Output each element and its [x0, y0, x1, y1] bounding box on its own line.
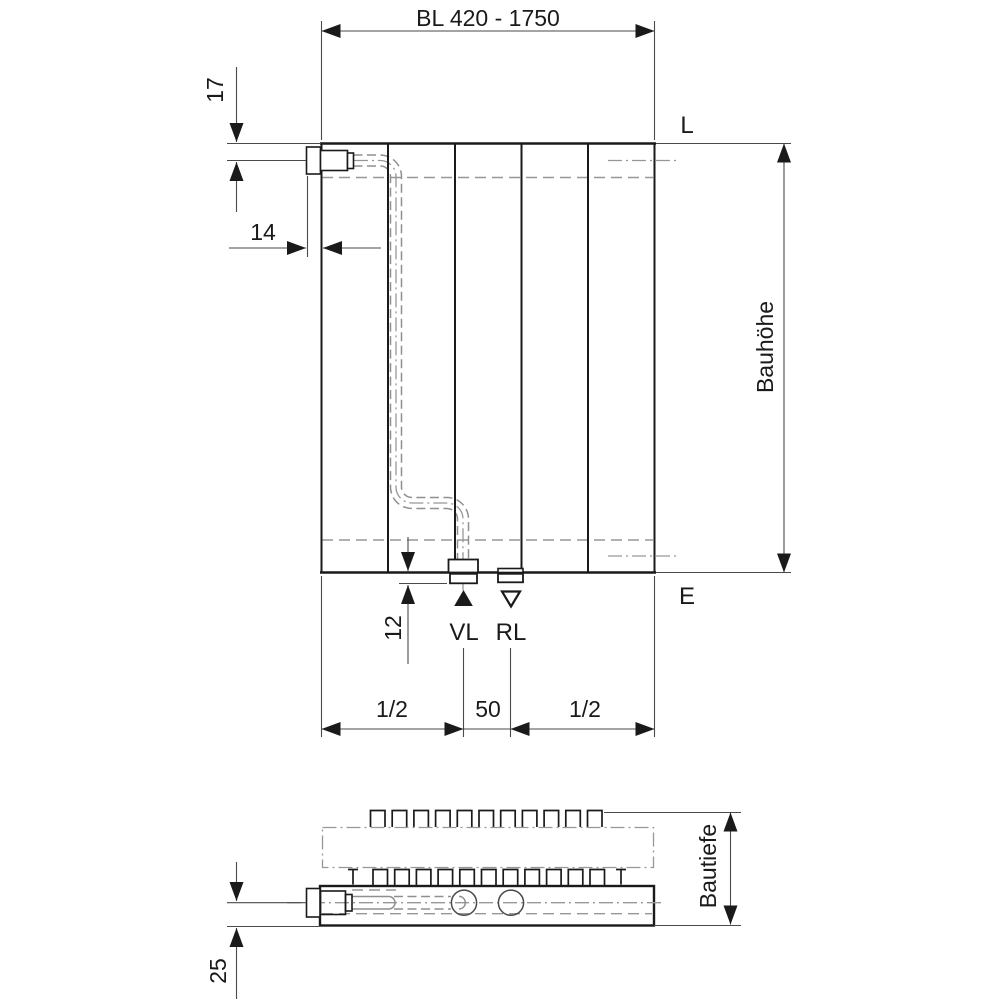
side-offset-text: 14: [250, 219, 276, 245]
supply-label: VL: [449, 619, 478, 646]
bottom-stub-text: 12: [380, 615, 406, 641]
plan-fitting-end-cap: [307, 889, 321, 918]
radiator-technical-drawing: VL RL L E BL 420 - 1750 17 14 12: [0, 0, 1000, 1000]
return-lip: [498, 569, 523, 573]
return-stub: [498, 574, 523, 583]
supply-port: [449, 560, 479, 584]
background: [0, 0, 1000, 1000]
bottom-right-span-text: 1/2: [569, 696, 601, 722]
top-offset-text: 17: [202, 77, 228, 103]
supply-nut: [449, 560, 479, 573]
bottom-right-label: E: [679, 583, 695, 610]
return-port: [498, 569, 523, 583]
fitting-neck: [348, 153, 354, 169]
bottom-center-span-text: 50: [475, 696, 501, 722]
top-right-label: L: [680, 112, 693, 139]
supply-stub: [450, 574, 477, 584]
return-label: RL: [496, 619, 527, 646]
front-panel-body: [320, 886, 654, 926]
fitting-body: [321, 151, 348, 171]
drawing-svg: VL RL L E BL 420 - 1750 17 14 12: [0, 0, 1000, 1000]
bottom-left-span-text: 1/2: [376, 696, 408, 722]
connection-axis-offset-text: 25: [205, 958, 231, 984]
fitting-end-cap: [307, 147, 321, 174]
depth-label-text: Bautiefe: [695, 824, 721, 908]
height-label-text: Bauhöhe: [752, 301, 778, 393]
top-connection-fitting: [307, 147, 354, 174]
length-dimension-text: BL 420 - 1750: [416, 5, 560, 31]
